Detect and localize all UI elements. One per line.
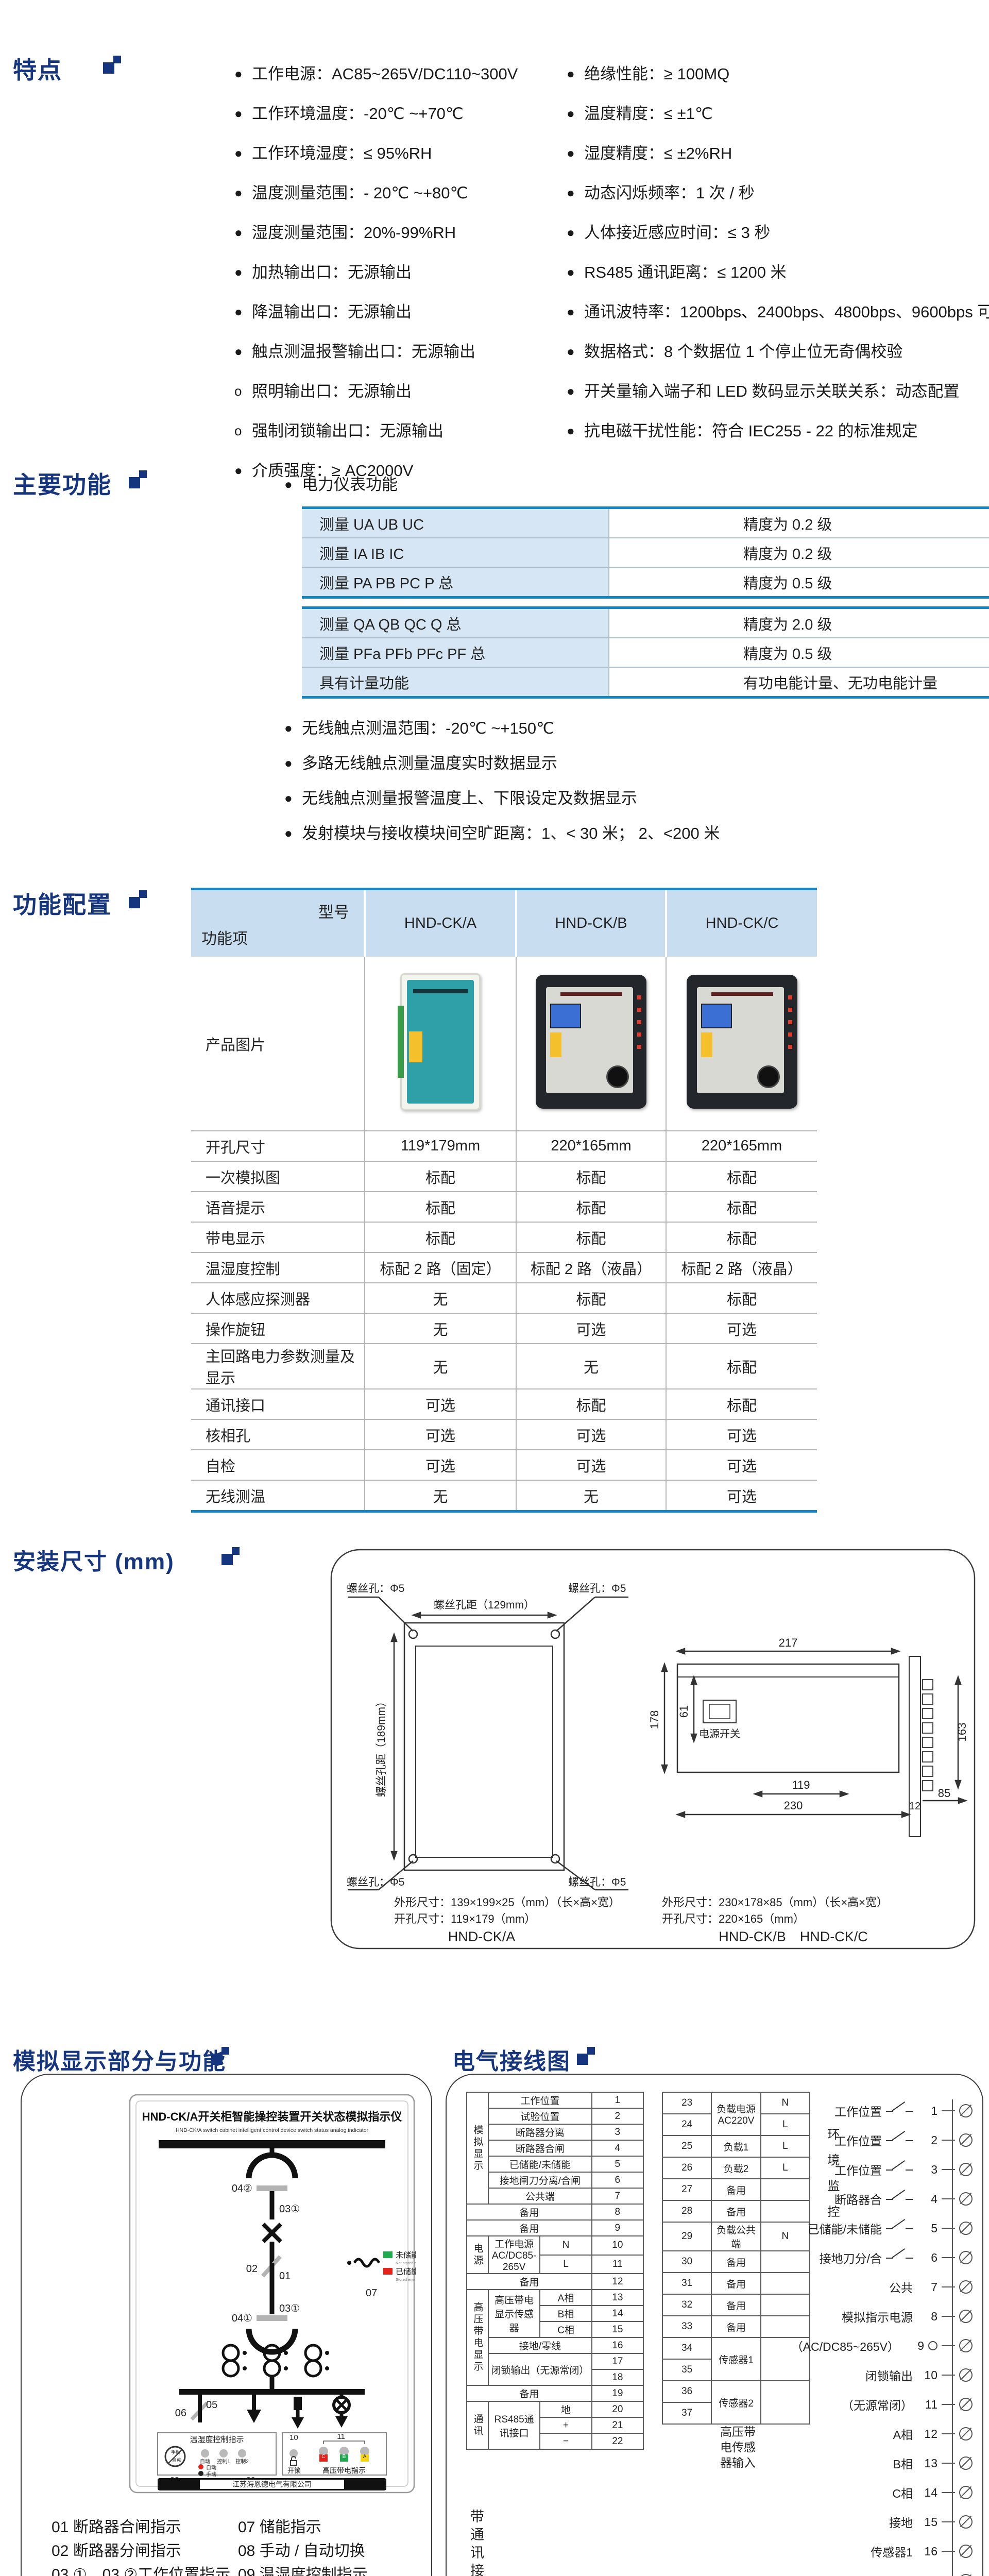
- terminal-cell: 10: [592, 2236, 643, 2255]
- terminal-cell: 15: [592, 2321, 643, 2337]
- model-config-table: 型号功能项HND-CK/AHND-CK/BHND-CK/C产品图片开孔尺寸119…: [191, 888, 817, 1513]
- config-value-cell: 标配: [666, 1283, 817, 1313]
- spec-item-cell: 测量 UA UB UC: [302, 508, 609, 538]
- terminal-cell: 备用: [467, 2274, 592, 2290]
- bullet-marker: ●: [234, 463, 252, 479]
- terminal-cell: 18: [592, 2369, 643, 2385]
- config-value-cell: 无: [365, 1313, 516, 1344]
- terminal-number: 3: [917, 2163, 937, 2177]
- spec-row: 具有计量功能有功电能计量、无功电能计量: [302, 667, 989, 698]
- wire-stub: [942, 2169, 955, 2170]
- bullet-marker: ●: [567, 383, 584, 399]
- config-value-cell: 标配: [365, 1222, 516, 1252]
- terminal-cell: 备用: [467, 2385, 592, 2401]
- main-function-bullet: ●无线触点测温范围：-20℃ ~+150℃: [284, 715, 554, 738]
- terminal-number: 9: [903, 2339, 924, 2353]
- label-10: 10: [289, 2433, 298, 2442]
- feature-item: ●工作电源：AC85~265V/DC110~300V: [234, 61, 518, 84]
- spec-value-cell: 精度为 2.0 级: [609, 608, 989, 638]
- wire-stub: [942, 2110, 955, 2111]
- terminal-cell: 通讯: [467, 2401, 488, 2449]
- terminal-cell: 4: [592, 2140, 643, 2156]
- terminal-number: 12: [917, 2427, 937, 2441]
- screw-terminal-icon: [959, 2339, 973, 2352]
- spec-value-cell: 精度为 0.2 级: [609, 538, 989, 567]
- config-value-cell: 标配: [365, 1161, 516, 1192]
- dim-12: 12: [909, 1801, 920, 1812]
- title-square-icon: [103, 56, 124, 76]
- terminal-cell: 地: [540, 2401, 591, 2417]
- bullet-marker: ●: [567, 423, 584, 439]
- bullet-marker: o: [234, 383, 252, 399]
- terminal-cell: 12: [592, 2274, 643, 2290]
- feature-text: 开关量输入端子和 LED 数码显示关联关系：动态配置: [584, 382, 960, 400]
- terminal-number: 16: [917, 2545, 937, 2558]
- spec-row: 测量 PA PB PC P 总精度为 0.5 级: [302, 567, 989, 598]
- terminal-cell: 19: [592, 2385, 643, 2401]
- config-value-cell: 标配: [666, 1344, 817, 1389]
- bullet-marker: ●: [284, 720, 302, 736]
- terminal-number: 13: [917, 2456, 937, 2470]
- wire-circle-icon: [928, 2341, 937, 2350]
- terminal-cell: 试验位置: [488, 2108, 592, 2124]
- config-value-cell: 标配 2 路（固定）: [365, 1252, 516, 1283]
- main-function-bullet: ●多路无线触点测量温度实时数据显示: [284, 750, 557, 773]
- feature-text: 湿度精度：≤ ±2%RH: [584, 144, 732, 162]
- model-header-cell: HND-CK/A: [365, 889, 516, 957]
- terminal-cell: 高压带电显示: [467, 2290, 488, 2385]
- bullet-marker: ●: [234, 106, 252, 122]
- bulb-manual-label: 手动: [206, 2471, 216, 2478]
- config-value-cell: 标配: [516, 1192, 666, 1222]
- legend-not-stored: 未储能: [396, 2251, 416, 2260]
- config-header-row: 型号功能项HND-CK/AHND-CK/BHND-CK/C: [191, 889, 817, 957]
- outline-size-bc: 外形尺寸：230×178×85（mm）（长×高×宽）: [662, 1896, 888, 1909]
- config-value-cell: 标配 2 路（液晶）: [666, 1252, 817, 1283]
- terminal-number: 10: [917, 2368, 937, 2382]
- feature-item: ●抗电磁干扰性能：符合 IEC255 - 22 的标准规定: [567, 418, 918, 441]
- terminal-strip-row: 接地15: [711, 2511, 973, 2533]
- feature-text: 强制闭锁输出口：无源输出: [252, 422, 444, 440]
- config-row-label: 操作旋钮: [191, 1313, 365, 1344]
- config-value-cell: 可选: [666, 1419, 817, 1450]
- label-11: 11: [337, 2432, 345, 2441]
- label-04-1: 04①: [232, 2313, 252, 2324]
- device-part-leds: [788, 995, 792, 1057]
- config-row: 无线测温无无可选: [191, 1480, 817, 1512]
- wire-stub: [942, 2463, 955, 2464]
- config-row-label: 一次模拟图: [191, 1161, 365, 1192]
- feature-item: o强制闭锁输出口：无源输出: [234, 418, 444, 441]
- feature-item: ●触点测温报警输出口：无源输出: [234, 338, 475, 362]
- terminal-strip-row: 17: [711, 2569, 973, 2576]
- wire-stub: [942, 2286, 955, 2287]
- terminal-cell: 17: [592, 2353, 643, 2369]
- feature-text: RS485 通讯距离：≤ 1200 米: [584, 263, 787, 281]
- terminal-row: 断路器分离3: [467, 2124, 643, 2140]
- device-part-stick: [550, 1032, 561, 1057]
- terminal-row: 高压带电显示高压带电显示传感器A相13: [467, 2290, 643, 2306]
- power-switch-label: 电源开关: [699, 1728, 740, 1740]
- config-row: 核相孔可选可选可选: [191, 1419, 817, 1450]
- spec-item-cell: 测量 QA QB QC Q 总: [302, 608, 609, 638]
- bullet-marker: ●: [234, 66, 252, 82]
- title-square-icon: [129, 890, 149, 911]
- spec-value-cell: 有功电能计量、无功电能计量: [609, 667, 989, 698]
- section-title-dimensions: 安装尺寸 (mm): [13, 1543, 175, 1576]
- section-title-panel: 模拟显示部分与功能: [13, 2043, 226, 2076]
- feature-text: 动态闪烁频率：1 次 / 秒: [584, 184, 755, 202]
- panel-title-cn: HND-CK/A开关柜智能操控装置开关状态模拟指示仪: [142, 2110, 403, 2123]
- knob-manual: 手动: [171, 2449, 180, 2455]
- terminal-cell: +: [540, 2417, 591, 2433]
- switch-contact-icon: [886, 2192, 913, 2206]
- terminal-cell: 公共端: [488, 2188, 592, 2204]
- terminal-cell: 33: [662, 2316, 711, 2337]
- config-value-cell: 可选: [666, 1480, 817, 1512]
- product-image-cell: [666, 957, 817, 1131]
- config-value-cell: 可选: [365, 1389, 516, 1419]
- led-ctrl2-label: 控制2: [235, 2458, 249, 2465]
- hv-box-title: 高压带电指示: [322, 2466, 366, 2475]
- wire-stub: [942, 2345, 955, 2346]
- phase-c: C: [321, 2454, 325, 2460]
- terminal-number: 1: [917, 2104, 937, 2118]
- terminal-cell: 工作电源 AC/DC85-265V: [488, 2236, 540, 2274]
- section-title-features: 特点: [13, 52, 62, 86]
- terminal-cell: 13: [592, 2290, 643, 2306]
- terminal-label: （AC/DC85~265V）: [791, 2337, 899, 2354]
- dim-230: 230: [784, 1799, 803, 1812]
- label-02: 02: [246, 2263, 258, 2275]
- terminal-label: B相: [893, 2454, 913, 2472]
- switch-contact-icon: [886, 2251, 913, 2264]
- terminal-cell: 备用: [467, 2220, 592, 2236]
- unlock-label: 开锁: [287, 2467, 301, 2475]
- config-value-cell: 标配 2 路（液晶）: [516, 1252, 666, 1283]
- screw-terminal-icon: [959, 2427, 973, 2441]
- terminal-cell: 11: [592, 2255, 643, 2274]
- bullet-marker: ●: [234, 225, 252, 241]
- feature-text: 数据格式：8 个数据位 1 个停止位无奇偶校验: [584, 343, 902, 361]
- terminal-row: 闭锁输出（无源常闭）17: [467, 2353, 643, 2369]
- terminal-row: 电源工作电源 AC/DC85-265VN10: [467, 2236, 643, 2255]
- bullet-marker: ●: [567, 145, 584, 161]
- dim-119: 119: [792, 1778, 810, 1791]
- terminal-cell: 14: [592, 2306, 643, 2321]
- feature-item: ●人体接近感应时间：≤ 3 秒: [567, 219, 770, 243]
- screw-terminal-icon: [959, 2515, 973, 2529]
- product-image-a: [400, 973, 481, 1110]
- feature-text: 降温输出口：无源输出: [252, 303, 412, 321]
- terminal-row: 断路器合闸4: [467, 2140, 643, 2156]
- config-row: 带电显示标配标配标配: [191, 1222, 817, 1252]
- terminal-cell: 24: [662, 2114, 711, 2136]
- config-value-cell: 220*165mm: [516, 1131, 666, 1161]
- terminal-cell: 36: [662, 2381, 711, 2402]
- terminal-cell: 37: [662, 2402, 711, 2424]
- terminal-strip-row: 工作位置1: [711, 2099, 973, 2122]
- company-name: 江苏海恩德电气有限公司: [232, 2480, 312, 2488]
- terminal-strip-row: 已储能/未储能5: [711, 2217, 973, 2240]
- terminal-label: 传感器1: [871, 2543, 913, 2560]
- config-value-cell: 220*165mm: [666, 1131, 817, 1161]
- terminal-cell: 34: [662, 2337, 711, 2359]
- title-square-icon: [577, 2047, 598, 2067]
- feature-item: ●绝缘性能：≥ 100MQ: [567, 61, 729, 84]
- terminal-number: 4: [917, 2192, 937, 2206]
- terminal-row: 公共端7: [467, 2188, 643, 2204]
- screw-terminal-icon: [959, 2133, 973, 2147]
- terminal-strip-row: 模拟指示电源8: [711, 2305, 973, 2328]
- terminal-row: 备用19: [467, 2385, 643, 2401]
- device-part-knob: [606, 1065, 629, 1088]
- terminal-cell: A相: [540, 2290, 591, 2306]
- config-value-cell: 可选: [516, 1450, 666, 1480]
- bullet-marker: ●: [234, 185, 252, 201]
- terminal-number: 8: [917, 2310, 937, 2324]
- terminal-label: 工作位置: [834, 2161, 882, 2178]
- spec-item-cell: 测量 IA IB IC: [302, 538, 609, 567]
- terminal-number: 2: [917, 2133, 937, 2147]
- terminal-number: 5: [917, 2222, 937, 2235]
- screw-terminal-icon: [959, 2251, 973, 2264]
- config-value-cell: 标配: [516, 1283, 666, 1313]
- label-01: 01: [279, 2270, 291, 2282]
- terminal-cell: 1: [592, 2092, 643, 2108]
- bullet-marker: ●: [567, 264, 584, 280]
- config-value-cell: 无: [365, 1344, 516, 1389]
- bullet-marker: ●: [234, 264, 252, 280]
- terminal-strip-row: 断路器合4: [711, 2188, 973, 2210]
- screw-terminal-icon: [959, 2104, 973, 2117]
- terminal-label: 闭锁输出: [865, 2366, 913, 2384]
- terminal-cell: 23: [662, 2092, 711, 2114]
- screw-terminal-icon: [959, 2456, 973, 2470]
- terminal-cell: 3: [592, 2124, 643, 2140]
- feature-item: ●湿度精度：≤ ±2%RH: [567, 140, 732, 163]
- wire-stub: [942, 2404, 955, 2405]
- feature-item: ●开关量输入端子和 LED 数码显示关联关系：动态配置: [567, 378, 960, 401]
- config-value-cell: 标配: [516, 1389, 666, 1419]
- spec-row: 测量 PFa PFb PFc PF 总精度为 0.5 级: [302, 638, 989, 667]
- screw-hole-label: 螺丝孔：Φ5: [568, 1876, 626, 1888]
- hole-pitch-vertical: 螺丝孔距（189mm）: [376, 1696, 387, 1797]
- title-square-icon: [211, 2047, 232, 2067]
- wire-stub: [942, 2257, 955, 2258]
- device-part-scr: [550, 1004, 581, 1028]
- bullet-marker: ●: [567, 66, 584, 82]
- bullet-text: 多路无线触点测量温度实时数据显示: [302, 754, 557, 772]
- device-part-scr: [701, 1004, 732, 1028]
- terminal-cell: 断路器分离: [488, 2124, 592, 2140]
- datasheet-page: 特点 ●工作电源：AC85~265V/DC110~300V●工作环境温度：-20…: [0, 0, 989, 2576]
- main-function-bullet: ●无线触点测量报警温度上、下限设定及数据显示: [284, 785, 637, 808]
- bullet-marker: ●: [567, 106, 584, 122]
- terminal-label: （无源常闭）: [842, 2396, 913, 2413]
- product-image-b: [536, 975, 646, 1109]
- terminal-cell: −: [540, 2433, 591, 2449]
- feature-item: ●加热输出口：无源输出: [234, 259, 412, 282]
- title-square-icon: [129, 470, 149, 491]
- terminal-label: 接地刀分/合: [820, 2249, 882, 2266]
- feature-item: ●数据格式：8 个数据位 1 个停止位无奇偶校验: [567, 338, 902, 362]
- terminal-cell: N: [540, 2236, 591, 2255]
- wire-stub: [942, 2140, 955, 2141]
- legend-stored: 已储能: [396, 2267, 416, 2276]
- terminal-number: 7: [917, 2280, 937, 2294]
- terminal-cell: 31: [662, 2273, 711, 2294]
- terminal-strip-row: 公共7: [711, 2276, 973, 2298]
- bullet-marker: ●: [567, 185, 584, 201]
- config-value-cell: 可选: [666, 1313, 817, 1344]
- terminal-row: 接地闸刀分离/合闸6: [467, 2172, 643, 2188]
- terminal-cell: 闭锁输出（无源常闭）: [488, 2353, 592, 2385]
- feature-item: ●工作环境温度：-20℃ ~+70℃: [234, 100, 464, 124]
- config-value-cell: 无: [516, 1480, 666, 1512]
- legend-item: 02 断路器分闸指示: [52, 2538, 181, 2561]
- hole-pitch-horizontal: 螺丝孔距（129mm）: [434, 1599, 535, 1611]
- config-value-cell: 标配: [666, 1192, 817, 1222]
- product-image-row: 产品图片: [191, 957, 817, 1131]
- terminal-label: A相: [893, 2425, 913, 2443]
- terminal-cell: 7: [592, 2188, 643, 2204]
- feature-text: 温度测量范围：- 20℃ ~+80℃: [252, 184, 468, 202]
- terminal-row: 通讯RS485通讯接口地20: [467, 2401, 643, 2417]
- feature-item: ●降温输出口：无源输出: [234, 299, 412, 322]
- spec-item-cell: 具有计量功能: [302, 667, 609, 698]
- terminal-cell: 8: [592, 2204, 643, 2220]
- feature-text: 工作环境温度：-20℃ ~+70℃: [252, 105, 464, 123]
- label-04-2: 04②: [232, 2183, 252, 2194]
- config-value-cell: 无: [516, 1344, 666, 1389]
- cutout-size-a: 开孔尺寸：119×179（mm）: [394, 1912, 536, 1925]
- terminal-row: 接地/零线16: [467, 2337, 643, 2353]
- legend-item: 09 温湿度控制指示: [238, 2562, 368, 2576]
- bullet-marker: ●: [567, 225, 584, 241]
- feature-text: 抗电磁干扰性能：符合 IEC255 - 22 的标准规定: [584, 422, 918, 440]
- switch-contact-icon: [886, 2222, 913, 2235]
- config-value-cell: 标配: [516, 1222, 666, 1252]
- terminal-cell: 6: [592, 2172, 643, 2188]
- front-view-hnd-ck-a: [348, 1597, 628, 1890]
- dim-61: 61: [677, 1705, 690, 1718]
- wire-stub: [942, 2198, 955, 2199]
- hv-sensor-input-label: 高压带 电传感 器输入: [720, 2424, 756, 2470]
- wire-stub: [942, 2521, 955, 2522]
- config-row: 开孔尺寸119*179mm220*165mm220*165mm: [191, 1131, 817, 1161]
- screw-terminal-icon: [959, 2163, 973, 2176]
- terminal-label: C相: [892, 2484, 913, 2501]
- terminal-cell: 备用: [467, 2204, 592, 2220]
- config-row: 一次模拟图标配标配标配: [191, 1161, 817, 1192]
- corner-model-label: 型号: [318, 900, 349, 922]
- cutout-size-bc: 开孔尺寸：220×165（mm）: [662, 1912, 805, 1925]
- terminal-row: 备用12: [467, 2274, 643, 2290]
- bullet-text: 无线触点测温范围：-20℃ ~+150℃: [302, 719, 554, 737]
- spec-value-cell: 精度为 0.2 级: [609, 508, 989, 538]
- switch-contact-icon: [886, 2104, 913, 2117]
- phase-b: B: [343, 2454, 346, 2460]
- image-row-label: 产品图片: [191, 957, 365, 1131]
- config-value-cell: 无: [365, 1480, 516, 1512]
- terminal-cell: 21: [592, 2417, 643, 2433]
- screw-terminal-icon: [959, 2368, 973, 2382]
- bullet-marker: ●: [234, 145, 252, 161]
- terminal-cell: 接地闸刀分离/合闸: [488, 2172, 592, 2188]
- spec-item-cell: 测量 PA PB PC P 总: [302, 567, 609, 598]
- accuracy-table-1: 测量 UA UB UC精度为 0.2 级测量 IA IB IC精度为 0.2 级…: [302, 506, 989, 599]
- config-row: 通讯接口可选标配标配: [191, 1389, 817, 1419]
- feature-item: ●动态闪烁频率：1 次 / 秒: [567, 180, 755, 203]
- config-row-label: 人体感应探测器: [191, 1283, 365, 1313]
- feature-item: ●湿度测量范围：20%-99%RH: [234, 219, 456, 243]
- screw-terminal-icon: [959, 2574, 973, 2576]
- terminal-cell: 25: [662, 2136, 711, 2157]
- section-title-wiring: 电气接线图: [452, 2043, 571, 2076]
- wire-stub: [942, 2228, 955, 2229]
- terminal-number: 17: [917, 2574, 937, 2576]
- terminal-cell: 27: [662, 2179, 711, 2200]
- feature-text: 温度精度：≤ ±1℃: [584, 105, 713, 123]
- terminal-cell: 20: [592, 2401, 643, 2417]
- feature-item: ●温度精度：≤ ±1℃: [567, 100, 713, 124]
- terminal-row: 模拟显示工作位置1: [467, 2092, 643, 2108]
- label-05: 05: [206, 2399, 217, 2411]
- drawing-border: [331, 1550, 975, 1948]
- feature-item: ●工作环境湿度：≤ 95%RH: [234, 140, 432, 163]
- feature-text: 工作电源：AC85~265V/DC110~300V: [252, 65, 518, 83]
- terminal-row: 备用9: [467, 2220, 643, 2236]
- feature-text: 照明输出口：无源输出: [252, 382, 412, 400]
- config-row: 操作旋钮无可选可选: [191, 1313, 817, 1344]
- terminal-strip-row: 接地刀分/合6: [711, 2246, 973, 2269]
- config-row: 语音提示标配标配标配: [191, 1192, 817, 1222]
- title-square-icon: [221, 1547, 242, 1568]
- bullet-marker: ●: [284, 755, 302, 771]
- config-value-cell: 标配: [365, 1192, 516, 1222]
- terminal-label: 模拟指示电源: [842, 2308, 913, 2325]
- terminal-number: 6: [917, 2251, 937, 2265]
- config-value-cell: 标配: [516, 1161, 666, 1192]
- terminal-label: 接地: [889, 2513, 913, 2531]
- terminal-number: 15: [917, 2515, 937, 2529]
- terminal-strip-row: 工作位置2: [711, 2129, 973, 2151]
- config-row-label: 温湿度控制: [191, 1252, 365, 1283]
- config-row-label: 主回路电力参数测量及显示: [191, 1344, 365, 1389]
- bullet-marker: ●: [284, 825, 302, 841]
- device-part-bar: [413, 989, 468, 993]
- feature-text: 加热输出口：无源输出: [252, 263, 412, 281]
- label-03-1: 03①: [279, 2204, 300, 2215]
- config-value-cell: 可选: [365, 1450, 516, 1480]
- terminal-cell: 2: [592, 2108, 643, 2124]
- feature-text: 通讯波特率：1200bps、2400bps、4800bps、9600bps 可设…: [584, 303, 989, 321]
- screw-terminal-icon: [959, 2486, 973, 2499]
- dimension-drawing: 螺丝孔：Φ5 螺丝孔：Φ5 螺丝孔：Φ5 螺丝孔：Φ5 螺丝孔距（129mm） …: [327, 1546, 979, 1953]
- screw-terminal-icon: [959, 2280, 973, 2294]
- terminal-row: 备用8: [467, 2204, 643, 2220]
- config-row: 温湿度控制标配 2 路（固定）标配 2 路（液晶）标配 2 路（液晶）: [191, 1252, 817, 1283]
- terminal-cell: 模拟显示: [467, 2092, 488, 2204]
- terminal-label: 工作位置: [834, 2131, 882, 2149]
- switch-contact-icon: [886, 2133, 913, 2147]
- terminal-number: 14: [917, 2486, 937, 2500]
- wire-stub: [942, 2433, 955, 2434]
- section-title-main-functions: 主要功能: [13, 466, 112, 500]
- switch-contact-icon: [886, 2163, 913, 2176]
- terminal-strip-row: 传感器116: [711, 2540, 973, 2563]
